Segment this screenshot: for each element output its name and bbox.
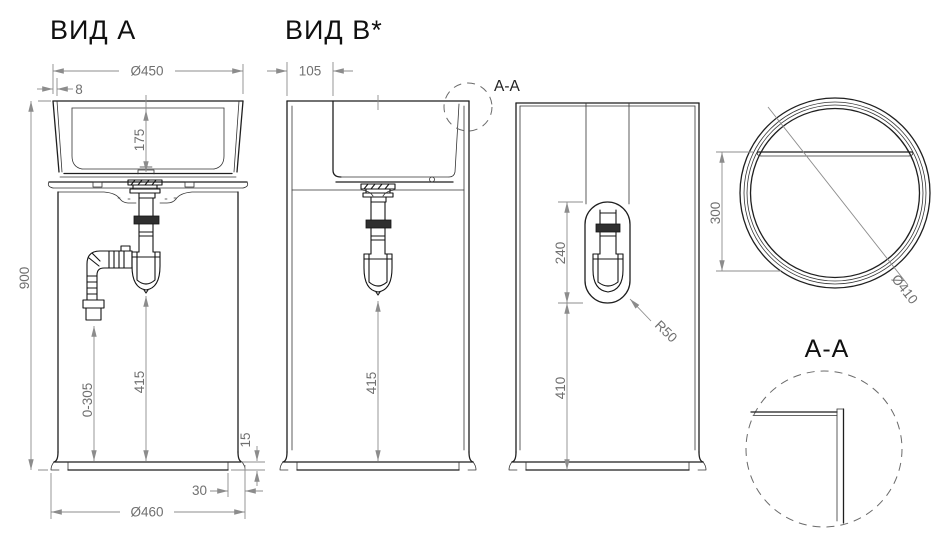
view-a-drain-hose <box>83 246 132 320</box>
dim-plinth-height: 15 <box>238 432 253 447</box>
view-a-drain-trap <box>128 167 162 293</box>
dim-back-ledge: 105 <box>299 64 322 79</box>
dim-trap-drop: 415 <box>132 371 147 394</box>
dim-cutout-radius: R50 <box>652 317 680 345</box>
section-marker-label: A-A <box>494 78 521 95</box>
view-back-trap <box>593 210 623 292</box>
dim-height: 900 <box>17 267 32 290</box>
view-a-basin-outline <box>53 101 243 177</box>
view-a-pedestal-outline <box>51 192 245 470</box>
view-b-dimensions: 105 415 <box>267 62 379 461</box>
view-back: 240 410 R50 <box>509 103 706 470</box>
view-back-outline <box>516 103 699 452</box>
dim-wall: 8 <box>75 82 83 97</box>
view-top-dimensions: 300 Ø410 <box>708 107 921 307</box>
view-b-section-marker: A-A <box>444 78 521 131</box>
dim-cutout-height: 240 <box>553 242 568 265</box>
drawing-sheet: ВИД А <box>0 0 942 550</box>
technical-drawing: ВИД А <box>0 0 942 550</box>
view-top-outline <box>740 98 930 288</box>
dim-ledge-depth: 300 <box>708 202 723 225</box>
view-b: ВИД B* <box>267 15 521 470</box>
dim-trap-drop-b: 415 <box>364 372 379 395</box>
view-b-title: ВИД B* <box>285 15 383 45</box>
view-back-dimensions: 240 410 R50 <box>553 202 680 470</box>
view-a-title: ВИД А <box>50 15 136 45</box>
dim-plinth-inset: 30 <box>192 483 207 498</box>
dim-hose-drop: 0-305 <box>80 383 95 418</box>
view-a: ВИД А <box>17 15 265 520</box>
view-a-dimensions: 900 Ø450 8 175 415 0-305 15 <box>17 64 265 520</box>
section-aa-title: A-A <box>805 335 850 363</box>
dim-bottom-width: Ø460 <box>130 505 163 520</box>
dim-diameter: Ø410 <box>889 272 921 307</box>
section-aa: A-A <box>746 335 902 527</box>
dim-basin-depth: 175 <box>132 129 147 152</box>
view-b-drain-trap <box>361 184 395 295</box>
view-top: 300 Ø410 <box>708 98 930 307</box>
view-back-base <box>509 452 706 470</box>
dim-cutout-to-base: 410 <box>553 377 568 400</box>
dim-top-width: Ø450 <box>130 64 163 79</box>
section-aa-profile <box>751 409 844 523</box>
